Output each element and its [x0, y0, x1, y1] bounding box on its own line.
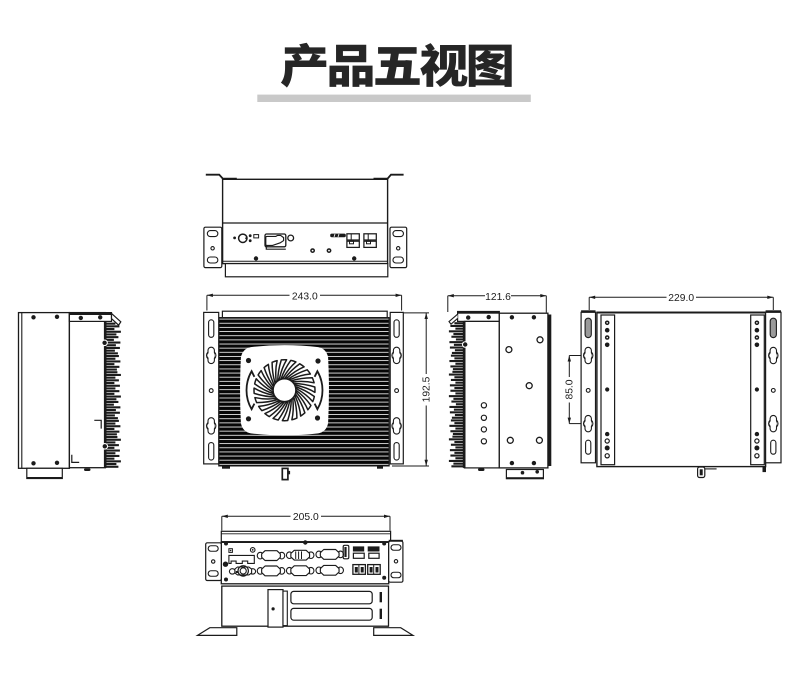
svg-text:205.0: 205.0	[293, 512, 319, 523]
svg-text:192.5: 192.5	[422, 376, 433, 402]
svg-text:229.0: 229.0	[668, 293, 694, 304]
svg-text:85.0: 85.0	[565, 379, 576, 399]
svg-text:243.0: 243.0	[292, 292, 318, 303]
svg-text:121.6: 121.6	[485, 292, 511, 303]
